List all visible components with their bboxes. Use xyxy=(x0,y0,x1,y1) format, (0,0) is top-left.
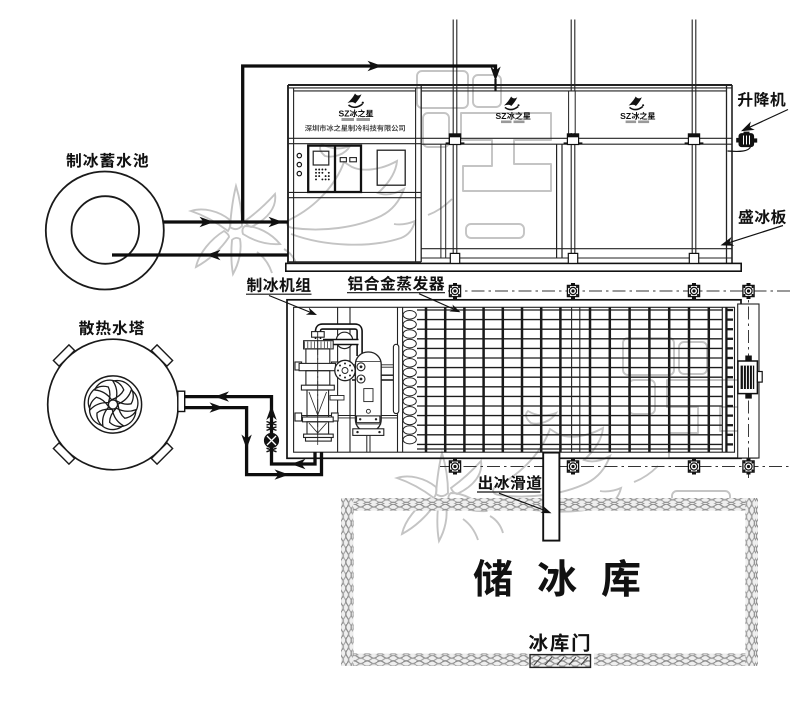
svg-text:SZ: SZ xyxy=(620,111,631,121)
svg-text:SZ: SZ xyxy=(339,109,350,119)
svg-text:SZ: SZ xyxy=(496,111,507,121)
